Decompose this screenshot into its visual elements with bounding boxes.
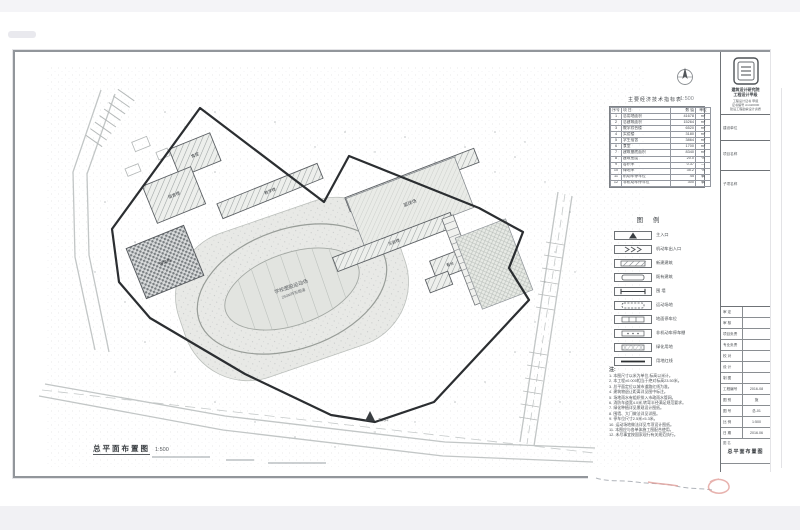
legend-item: 主入口 [614,228,724,242]
sign-row: 设 计 [721,362,770,373]
drawing-sheet: 学校塑胶运动场 250M环形跑道 食堂 宿舍楼 教学楼 篮球场 [13,50,770,478]
info-row: 工程编号2016-08 [721,384,770,395]
table-row: 12非机动车停车位300辆 [611,180,711,186]
legend-item: 运动场地 [614,298,724,312]
legend-item: 新建建筑 [614,256,724,270]
new-building-icon [614,259,652,268]
svg-text:主入口: 主入口 [378,417,389,422]
legend-item: 围 墙 [614,284,724,298]
notes-title: 注: [609,366,616,373]
field-project: 项目名称 [721,140,770,170]
info-row: 比 例1:500 [721,417,770,428]
notes-block: 1. 本图尺寸以米为单位,标高以米计。 2. 本工程±0.000相当于绝对标高2… [609,373,729,438]
sports-ground-icon [614,301,652,310]
legend-title: 图 例 [615,214,685,224]
top-gray-strip [0,0,800,12]
econ-table-title: 主要经济技术指标表 [593,96,717,103]
sign-row: 项目负责 [721,329,770,340]
greenery-icon [614,343,652,352]
existing-building-icon [614,273,652,282]
parking-stall-icon [614,315,652,324]
legend-item: 地面停车位 [614,312,724,326]
north-arrow-icon [678,68,693,85]
bike-shed-icon [614,329,652,338]
titleblock-spacer [721,216,770,306]
signature-table: 审 定 审 核 项目负责 专业负责 校 对 设 计 制 图 工程编号2016-0… [721,306,770,476]
info-row: 图 别施 [721,395,770,406]
design-institute-logo-icon [733,57,759,85]
figure-name-cell: 图 名 总平面布置图 [721,439,770,464]
certificate-lines: 工程设计证书 甲级 证书编号 A1420000 建设工程勘察设计资质 [722,99,769,111]
bottom-gray-strip [0,506,800,530]
legend-item: 机动车出入口 [614,242,724,256]
vehicle-entrance-icon [614,245,652,254]
sign-row: 审 定 [721,307,770,318]
legend-item: 用地红线 [614,354,724,368]
top-left-blob [8,31,36,38]
title-block: 建筑设计研究院 工程设计甲级 工程设计证书 甲级 证书编号 A1420000 建… [720,52,770,476]
legend-item: 绿化用地 [614,340,724,354]
page-edge-line [781,88,782,468]
legend: 主入口 机动车出入口 新建建筑 既有建筑 围 墙 运动场地 [614,228,724,368]
entrance-triangle-icon [614,231,652,240]
econ-table: 序号 项 目 数 值 单位 1总用地面积41678m² 2总建筑面积15264m… [609,106,705,188]
info-row: 日 期2016.06 [721,428,770,439]
field-owner: 建设单位 [721,114,770,140]
sign-row: 制 图 [721,373,770,384]
red-line-icon [614,357,652,366]
field-subproject: 子项名称 [721,170,770,216]
legend-item: 非机动车停车棚 [614,326,724,340]
sign-row: 专业负责 [721,340,770,351]
empty-cell [721,464,770,476]
drawing-title: 总平面布置图1:500 [93,438,169,456]
sign-row: 审 核 [721,318,770,329]
scribble-gray [596,478,712,490]
company-name: 建筑设计研究院 工程设计甲级 [721,87,770,97]
watermark-red-swirl [648,479,729,493]
fence-icon [614,287,652,296]
legend-item: 既有建筑 [614,270,724,284]
info-row: 图 号总-01 [721,406,770,417]
note-line: 12. 未尽事宜按国家现行有关规范执行。 [609,432,729,437]
sign-row: 校 对 [721,351,770,362]
